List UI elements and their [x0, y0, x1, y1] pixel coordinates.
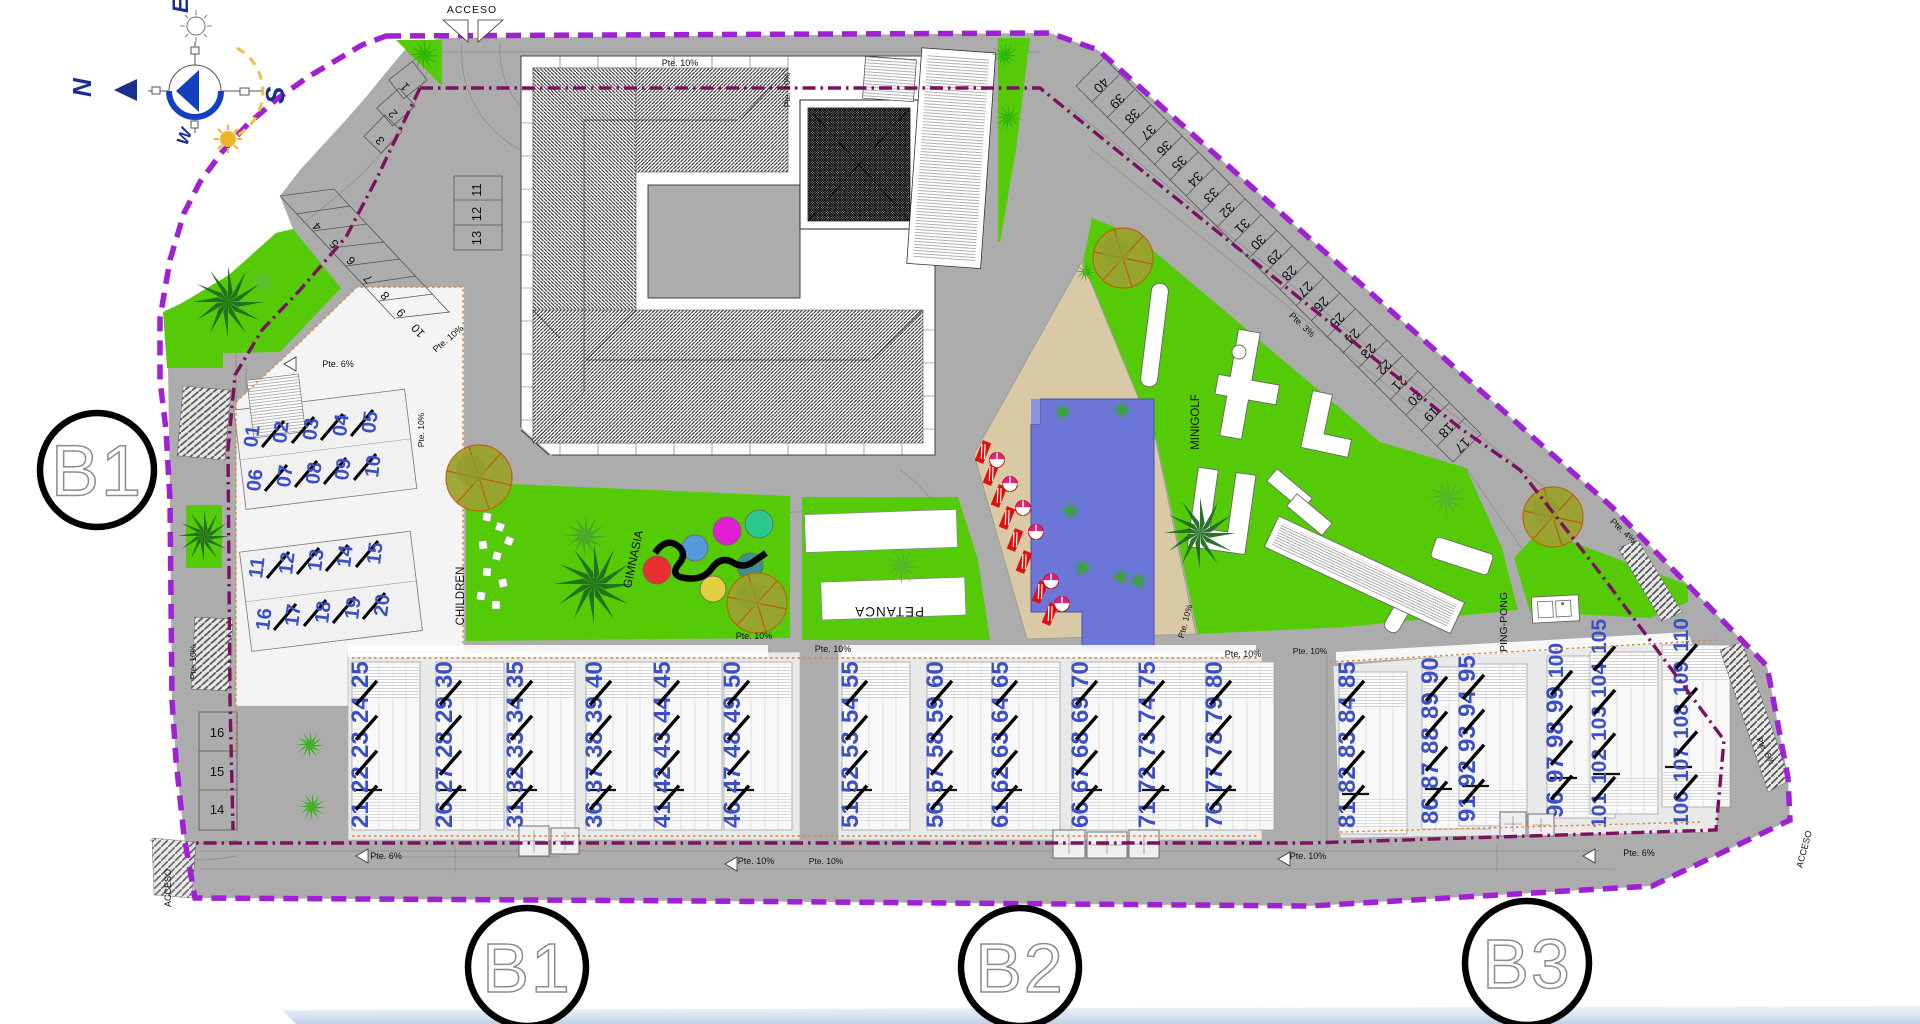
svg-text:80: 80 — [1201, 661, 1228, 688]
svg-text:106: 106 — [1670, 791, 1693, 826]
svg-text:110: 110 — [1670, 618, 1693, 652]
svg-text:Pte. 6%: Pte. 6% — [1623, 848, 1655, 858]
svg-text:12: 12 — [469, 207, 484, 221]
svg-text:14: 14 — [333, 543, 358, 569]
svg-text:11: 11 — [469, 183, 484, 197]
svg-text:11: 11 — [245, 556, 269, 580]
svg-text:105: 105 — [1588, 619, 1611, 654]
svg-text:07: 07 — [273, 464, 298, 489]
svg-text:70: 70 — [1067, 661, 1094, 688]
svg-text:B3: B3 — [1482, 925, 1572, 1003]
svg-text:12: 12 — [275, 551, 300, 576]
svg-text:01: 01 — [240, 424, 265, 449]
svg-text:104: 104 — [1588, 663, 1611, 698]
svg-text:E: E — [168, 0, 193, 13]
svg-text:100: 100 — [1545, 643, 1568, 678]
svg-text:50: 50 — [719, 661, 746, 688]
svg-text:75: 75 — [1134, 661, 1161, 688]
svg-text:14: 14 — [210, 802, 224, 817]
svg-text:45: 45 — [649, 661, 676, 688]
svg-text:CHILDREN: CHILDREN — [455, 567, 467, 626]
svg-text:MINIGOLF: MINIGOLF — [1190, 394, 1202, 450]
svg-text:Pte. 10%: Pte. 10% — [1293, 646, 1328, 656]
svg-text:85: 85 — [1334, 661, 1361, 688]
svg-text:Pte. 6%: Pte. 6% — [322, 359, 354, 369]
svg-text:04: 04 — [329, 412, 354, 438]
svg-text:B2: B2 — [975, 929, 1065, 1007]
svg-text:107: 107 — [1670, 747, 1693, 782]
svg-text:19: 19 — [341, 596, 366, 621]
svg-text:40: 40 — [581, 661, 608, 688]
svg-text:35: 35 — [502, 661, 529, 688]
svg-text:95: 95 — [1454, 655, 1481, 682]
svg-text:65: 65 — [987, 661, 1014, 688]
svg-text:90: 90 — [1417, 657, 1444, 684]
svg-text:PING-PONG: PING-PONG — [1498, 592, 1510, 652]
svg-text:03: 03 — [299, 417, 324, 442]
svg-text:Pte. 10%: Pte. 10% — [815, 644, 852, 654]
svg-text:05: 05 — [358, 410, 383, 435]
svg-text:S: S — [260, 86, 290, 104]
svg-text:Pte. 10%: Pte. 10% — [809, 856, 844, 866]
svg-text:Pte. 10%: Pte. 10% — [736, 631, 773, 641]
svg-text:20: 20 — [370, 593, 395, 618]
svg-text:PETANCA: PETANCA — [854, 604, 924, 619]
svg-text:09: 09 — [331, 457, 356, 482]
svg-text:Pte. 6%: Pte. 6% — [370, 851, 402, 861]
svg-text:B1: B1 — [482, 929, 572, 1007]
svg-text:15: 15 — [363, 541, 388, 566]
svg-text:Pte. 10%: Pte. 10% — [782, 72, 792, 107]
svg-text:Pte. 10%: Pte. 10% — [188, 644, 198, 679]
svg-text:ACCESO: ACCESO — [447, 4, 497, 16]
svg-text:Pte. 10%: Pte. 10% — [1225, 649, 1262, 659]
svg-text:25: 25 — [347, 661, 374, 688]
svg-text:17: 17 — [281, 603, 306, 628]
svg-text:B1: B1 — [51, 432, 143, 512]
svg-text:Pte. 10%: Pte. 10% — [662, 58, 699, 68]
svg-text:30: 30 — [431, 661, 458, 688]
svg-text:16: 16 — [210, 725, 224, 740]
svg-text:ACCESO: ACCESO — [163, 869, 173, 907]
svg-text:13: 13 — [469, 231, 484, 245]
svg-text:101: 101 — [1588, 793, 1611, 828]
svg-text:55: 55 — [837, 661, 864, 688]
svg-text:102: 102 — [1588, 749, 1611, 784]
svg-text:108: 108 — [1670, 704, 1693, 739]
svg-text:Pte. 10%: Pte. 10% — [1290, 851, 1327, 861]
svg-text:10: 10 — [361, 454, 386, 479]
svg-text:Pte. 10%: Pte. 10% — [738, 856, 775, 866]
svg-text:06: 06 — [243, 468, 268, 493]
svg-text:08: 08 — [302, 461, 327, 486]
svg-text:15: 15 — [210, 764, 224, 779]
svg-text:103: 103 — [1588, 706, 1611, 741]
svg-text:18: 18 — [311, 600, 336, 625]
svg-text:Pte. 10%: Pte. 10% — [416, 412, 426, 447]
svg-text:13: 13 — [304, 548, 329, 573]
svg-text:N: N — [67, 77, 97, 97]
svg-text:02: 02 — [269, 420, 294, 445]
svg-text:16: 16 — [252, 607, 277, 632]
svg-text:60: 60 — [922, 661, 949, 688]
svg-text:109: 109 — [1670, 661, 1693, 696]
